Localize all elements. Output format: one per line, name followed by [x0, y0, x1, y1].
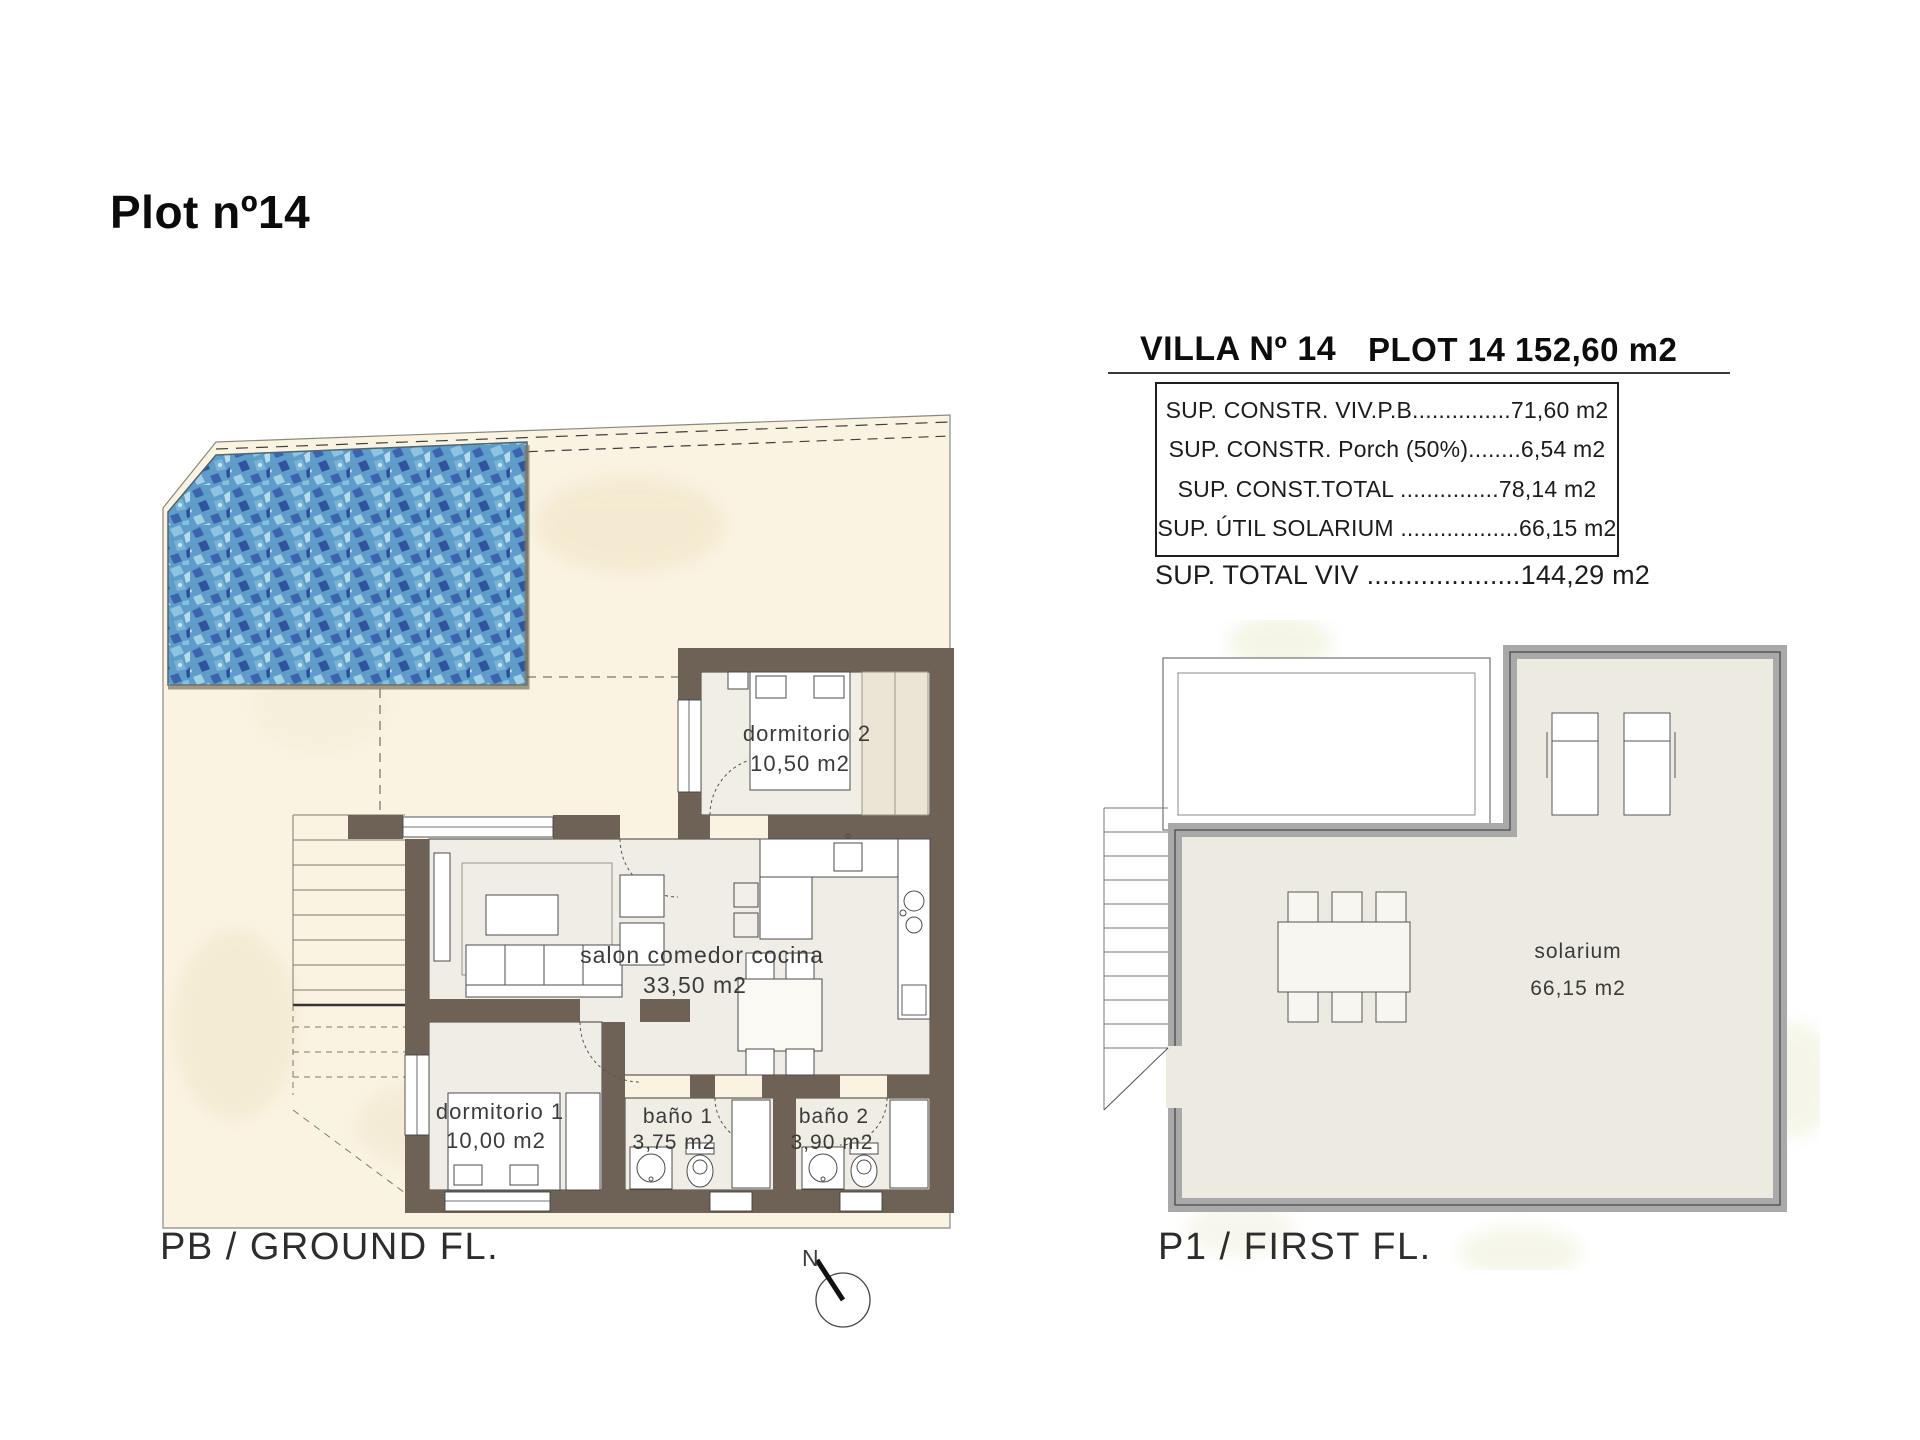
kitchen-peninsula — [760, 877, 812, 939]
exterior-stairs-ff — [1104, 808, 1168, 1110]
bano2-label: baño 2 — [799, 1105, 869, 1128]
tv-sideboard — [434, 853, 450, 961]
bano1-area: 3,75 m2 — [633, 1131, 716, 1154]
bano1-label: baño 1 — [643, 1105, 713, 1128]
dormitorio1-area: 10,00 m2 — [446, 1128, 546, 1153]
salon-area: 33,50 m2 — [643, 972, 747, 998]
table-row-util-solarium: SUP. ÚTIL SOLARIUM ..................66,… — [1158, 515, 1617, 542]
surface-areas-table: SUP. CONSTR. VIV.P.B...............71,60… — [1155, 382, 1619, 557]
ground-floor-caption: PB / GROUND FL. — [160, 1226, 499, 1269]
first-floor-caption: P1 / FIRST FL. — [1158, 1226, 1432, 1269]
swimming-pool — [168, 442, 527, 685]
header-underline — [1108, 372, 1730, 374]
salon-label: salon comedor cocina — [580, 942, 824, 968]
first-floor-plan: solarium 66,15 m2 — [1090, 620, 1820, 1275]
table-row-total-viv: SUP. TOTAL VIV ....................144,2… — [1155, 560, 1615, 591]
compass-n-label: N — [802, 1245, 819, 1271]
dormitorio2-label: dormitorio 2 — [743, 721, 871, 746]
coffee-table — [486, 895, 558, 935]
plan-sheet: { "title": "Plot nº14", "header": { "vil… — [0, 0, 1920, 1440]
table-row-constr-pb: SUP. CONSTR. VIV.P.B...............71,60… — [1166, 397, 1609, 424]
wardrobe — [566, 1093, 600, 1190]
table-row-constr-porch: SUP. CONSTR. Porch (50%)........6,54 m2 — [1169, 436, 1606, 463]
shower-1 — [732, 1100, 770, 1188]
page-title: Plot nº14 — [110, 185, 310, 239]
dining-table — [738, 979, 822, 1051]
compass-needle — [817, 1260, 843, 1300]
villa-title: VILLA Nº 14 — [1140, 330, 1336, 369]
roof-dining-set — [1278, 892, 1410, 1022]
ground-floor-plan: dormitorio 2 10,50 m2 salon comedor coci… — [150, 405, 1000, 1245]
sofa-back — [466, 985, 622, 997]
void-rect — [1163, 658, 1490, 830]
armchair — [620, 875, 664, 917]
stair-opening — [1166, 1046, 1184, 1108]
north-compass: N — [790, 1238, 910, 1363]
dormitorio1-label: dormitorio 1 — [436, 1099, 564, 1124]
dormitorio2-area: 10,50 m2 — [750, 751, 850, 776]
table-row-const-total: SUP. CONST.TOTAL ...............78,14 m2 — [1178, 476, 1597, 503]
kitchen-counter-right — [898, 839, 930, 1019]
bano2-area: 3,90 m2 — [791, 1131, 874, 1154]
plot-area-title: PLOT 14 152,60 m2 — [1368, 331, 1677, 369]
solarium-area: 66,15 m2 — [1530, 977, 1626, 1000]
solarium-label: solarium — [1534, 940, 1621, 963]
shower-2 — [890, 1100, 928, 1188]
